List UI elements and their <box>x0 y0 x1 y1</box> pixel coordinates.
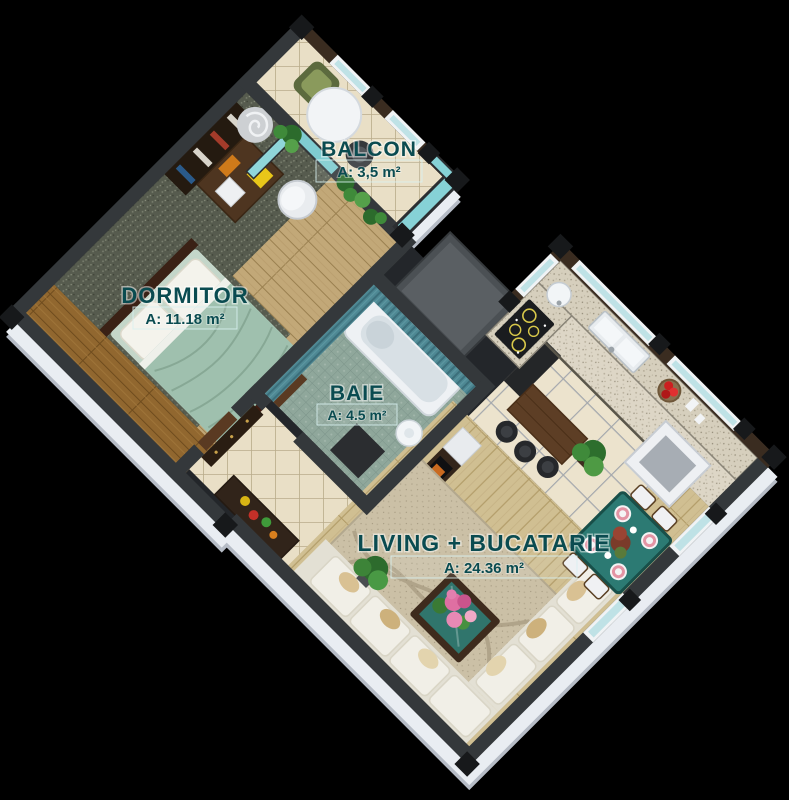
room-name-dormitor: DORMITOR <box>121 283 248 308</box>
room-name-baie: BAIE <box>330 382 384 405</box>
room-name-balcon: BALCON <box>321 138 417 161</box>
room-area-dormitor: A: 11.18 m² <box>145 311 224 328</box>
room-area-balcon: A: 3,5 m² <box>337 164 400 181</box>
floorplan-render: BALCON A: 3,5 m² DORMITOR A: 11.18 m² BA… <box>0 0 789 800</box>
room-area-living: A: 24.36 m² <box>444 560 524 577</box>
room-name-living: LIVING + BUCATARIE <box>358 530 611 556</box>
room-area-baie: A: 4.5 m² <box>327 407 386 423</box>
floorplan-canvas: BALCON A: 3,5 m² DORMITOR A: 11.18 m² BA… <box>0 0 789 800</box>
room-label-balcon: BALCON A: 3,5 m² <box>316 138 422 182</box>
room-label-living: LIVING + BUCATARIE A: 24.36 m² <box>358 530 611 578</box>
room-label-dormitor: DORMITOR A: 11.18 m² <box>121 283 248 329</box>
